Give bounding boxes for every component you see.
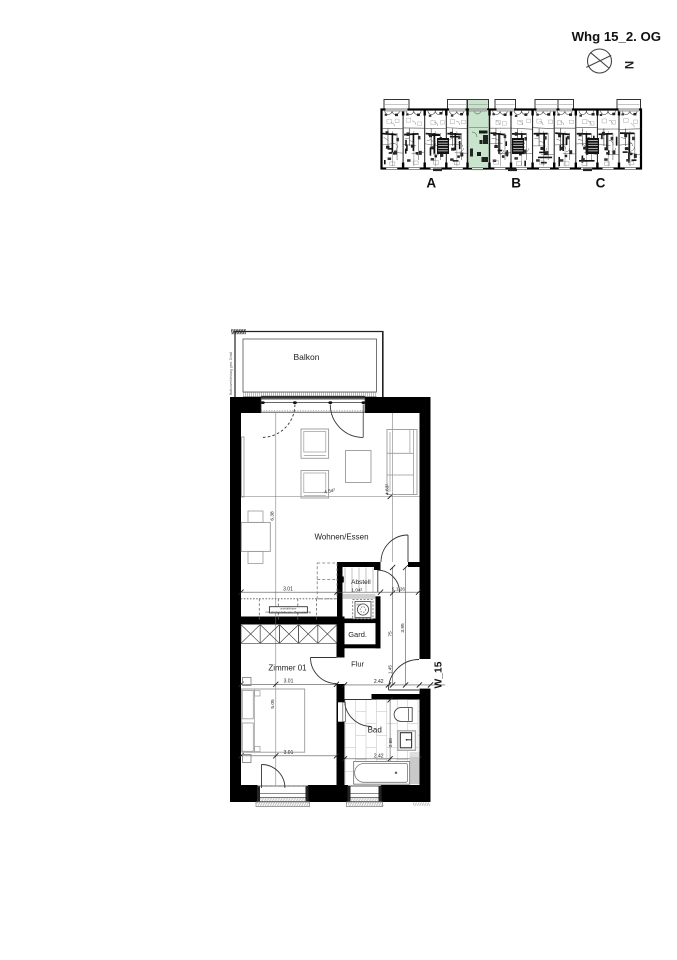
- svg-text:1.04²: 1.04²: [351, 587, 362, 593]
- svg-text:Gard.: Gard.: [348, 630, 367, 639]
- svg-text:incl. Küchenzeile gem. Bemuste: incl. Küchenzeile gem. Bemusterung: [266, 610, 312, 614]
- svg-text:Zimmer 01: Zimmer 01: [268, 664, 307, 673]
- svg-text:Balkon: Balkon: [294, 352, 320, 362]
- svg-text:Wohnen/Essen: Wohnen/Essen: [314, 533, 368, 542]
- svg-text:2.68: 2.68: [388, 738, 393, 747]
- svg-text:3.01: 3.01: [284, 679, 294, 685]
- svg-text:3.95: 3.95: [400, 623, 406, 633]
- svg-text:75: 75: [388, 631, 394, 637]
- svg-text:A: A: [426, 176, 436, 191]
- svg-text:1.45: 1.45: [388, 665, 393, 674]
- svg-text:Balkonverkleidung gem. Detail: Balkonverkleidung gem. Detail: [229, 352, 233, 395]
- svg-text:4.63²: 4.63²: [384, 484, 390, 495]
- svg-text:N: N: [622, 61, 634, 69]
- svg-text:Whg 15_2. OG: Whg 15_2. OG: [572, 29, 661, 44]
- svg-text:1.26: 1.26: [396, 587, 405, 592]
- svg-text:WM: WM: [356, 603, 361, 607]
- svg-text:Bad: Bad: [368, 726, 382, 735]
- svg-text:Abstell: Abstell: [351, 579, 371, 586]
- svg-text:Flur: Flur: [351, 660, 364, 669]
- svg-text:3.01: 3.01: [283, 587, 293, 593]
- svg-text:C: C: [596, 176, 606, 191]
- svg-text:5.05: 5.05: [270, 699, 276, 709]
- svg-text:W_15: W_15: [433, 661, 444, 688]
- svg-text:2.42: 2.42: [374, 753, 384, 759]
- svg-text:3.01: 3.01: [284, 750, 294, 756]
- svg-text:6.38: 6.38: [270, 511, 276, 521]
- svg-text:2.42: 2.42: [374, 679, 384, 685]
- svg-text:B: B: [511, 176, 521, 191]
